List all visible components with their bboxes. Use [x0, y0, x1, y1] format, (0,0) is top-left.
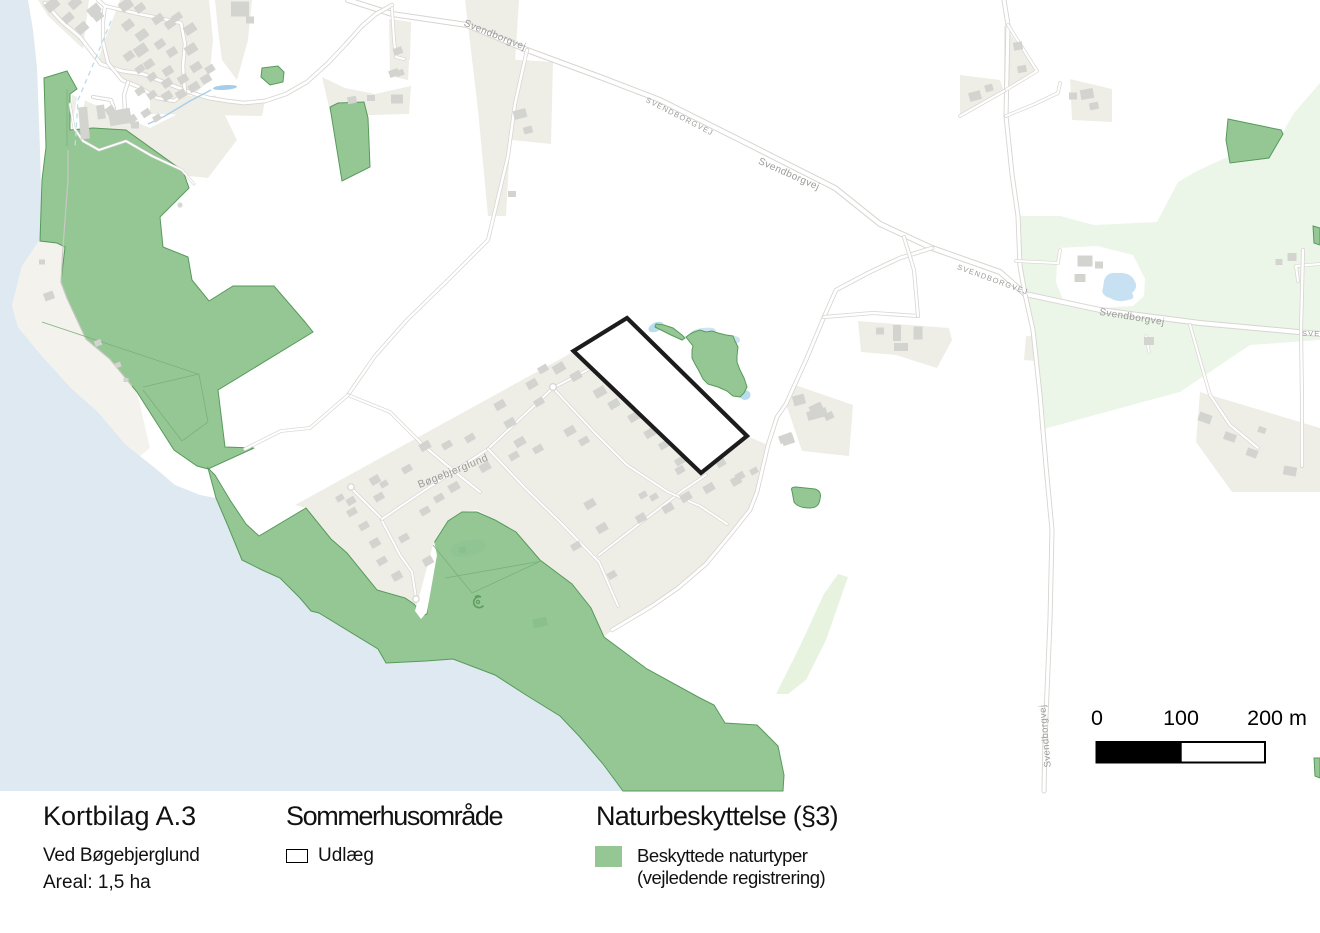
- svg-text:100: 100: [1163, 706, 1199, 730]
- svg-text:SVEN: SVEN: [1302, 329, 1320, 338]
- svg-text:0: 0: [1091, 706, 1103, 730]
- svg-text:Svendborgvej: Svendborgvej: [1037, 704, 1053, 768]
- svg-text:SVENDBORGVEJ: SVENDBORGVEJ: [644, 95, 715, 137]
- svg-text:200 m: 200 m: [1247, 706, 1307, 730]
